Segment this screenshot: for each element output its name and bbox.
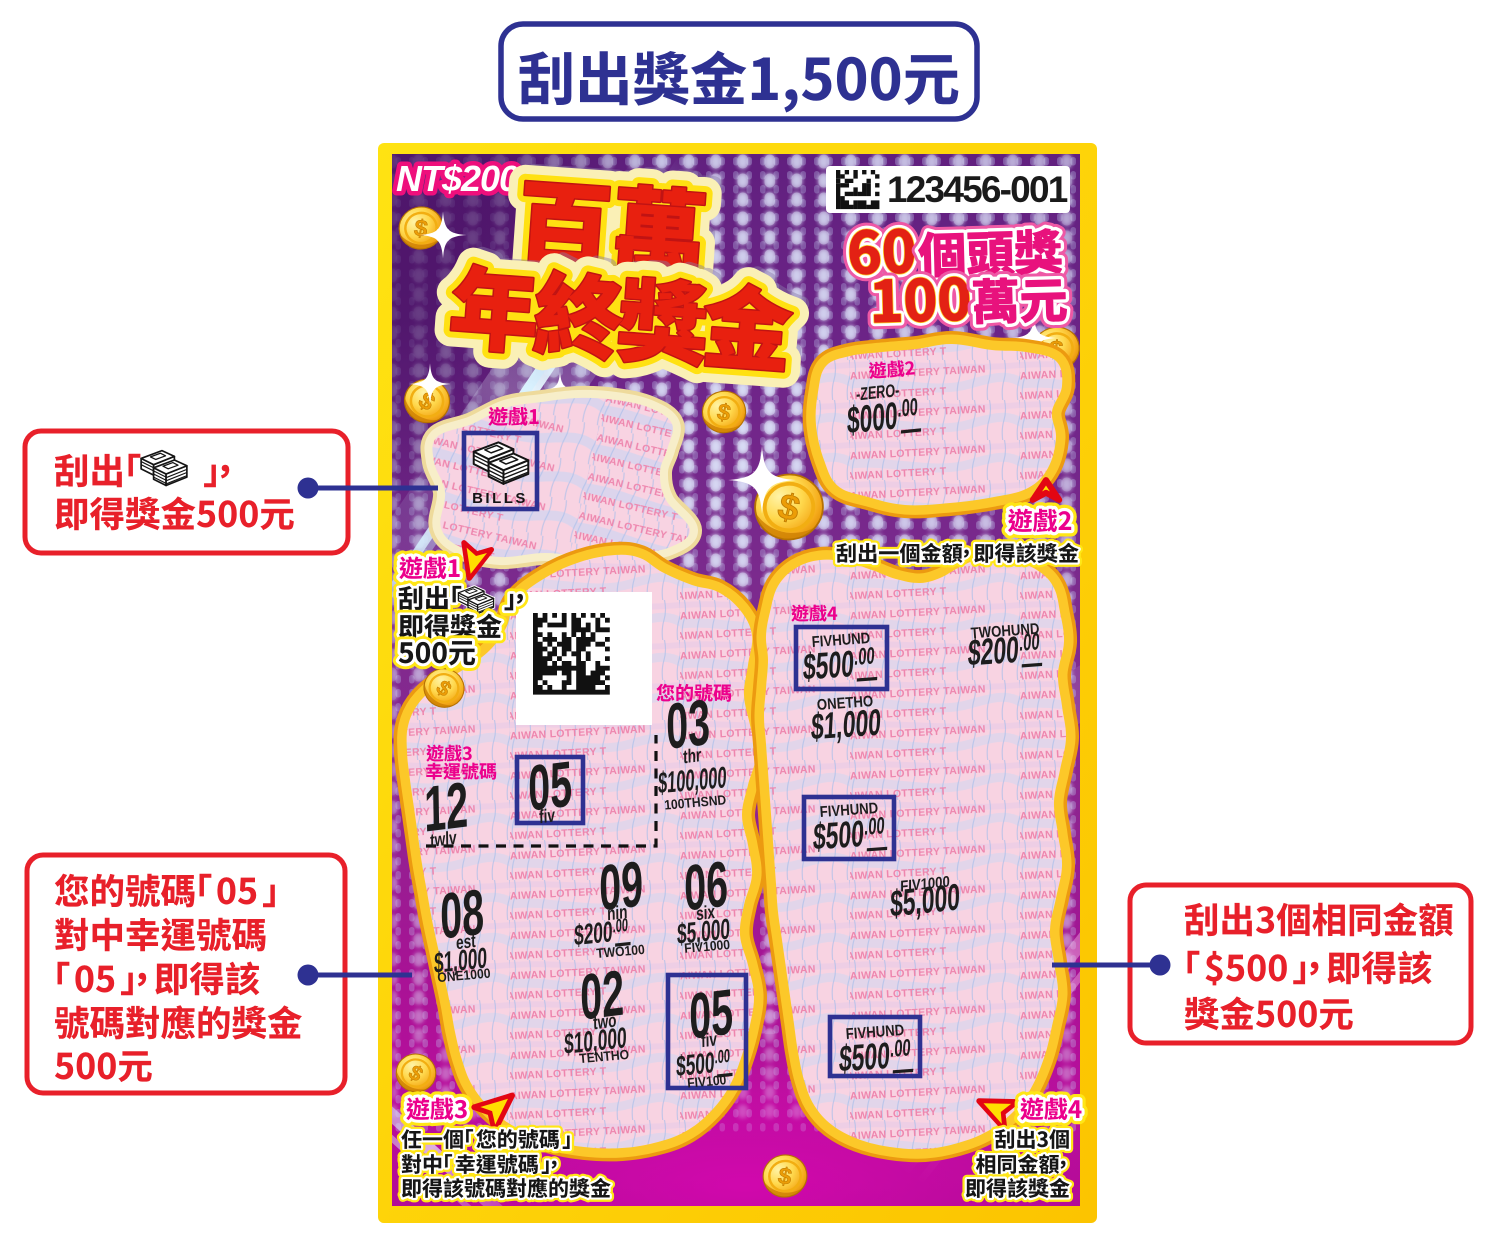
svg-text:$1,000: $1,000 [810, 701, 882, 748]
svg-text:NT$200: NT$200 [396, 158, 519, 199]
svg-text:123456-001: 123456-001 [887, 169, 1068, 210]
svg-text:BILLS: BILLS [472, 490, 528, 507]
svg-text:twlv: twlv [430, 827, 457, 852]
svg-text:fiv: fiv [539, 804, 556, 828]
svg-text:$5,000: $5,000 [890, 876, 960, 925]
